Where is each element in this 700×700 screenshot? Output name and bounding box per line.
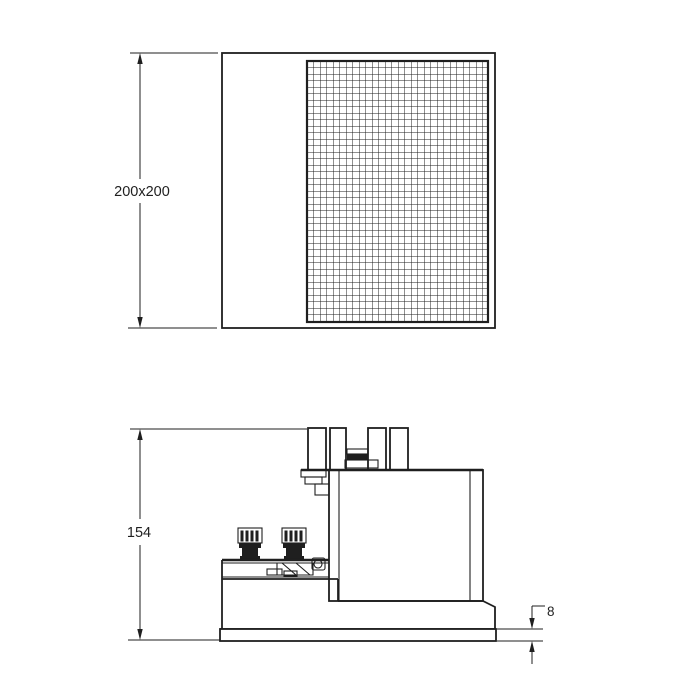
left-flange-bracket — [301, 470, 329, 495]
side-view — [220, 428, 496, 641]
adjustment-knob-1 — [238, 528, 262, 560]
technical-drawing-canvas: 200x200 — [0, 0, 700, 700]
dimension-154: 154 — [127, 429, 307, 640]
terminal-platform — [222, 558, 329, 579]
fixing-clip-2 — [330, 428, 346, 470]
technical-drawing-page: 200x200 — [0, 0, 700, 700]
bottom-trim-plate — [220, 629, 496, 641]
arrow-down-icon — [137, 317, 142, 328]
dimension-200x200: 200x200 — [114, 53, 218, 328]
fixing-clip-1 — [308, 428, 326, 470]
arrow-down-icon — [137, 629, 142, 640]
lower-housing — [220, 579, 496, 629]
arrow-up-icon — [137, 429, 142, 440]
arrow-down-icon — [529, 618, 534, 629]
platform-bracket — [267, 563, 313, 576]
top-view — [222, 53, 495, 328]
adjustment-knob-2 — [282, 528, 306, 560]
fixing-clip-3 — [368, 428, 386, 470]
gear-box — [329, 470, 483, 601]
dimension-8: 8 — [497, 604, 555, 664]
fixing-clip-4 — [390, 428, 408, 470]
dim-label-8: 8 — [547, 604, 555, 619]
dim-label-154: 154 — [127, 525, 151, 541]
arrow-up-icon — [137, 53, 142, 64]
dim-label-200x200: 200x200 — [114, 184, 170, 200]
arrow-up-icon — [529, 641, 534, 652]
louver-grid — [307, 61, 488, 322]
